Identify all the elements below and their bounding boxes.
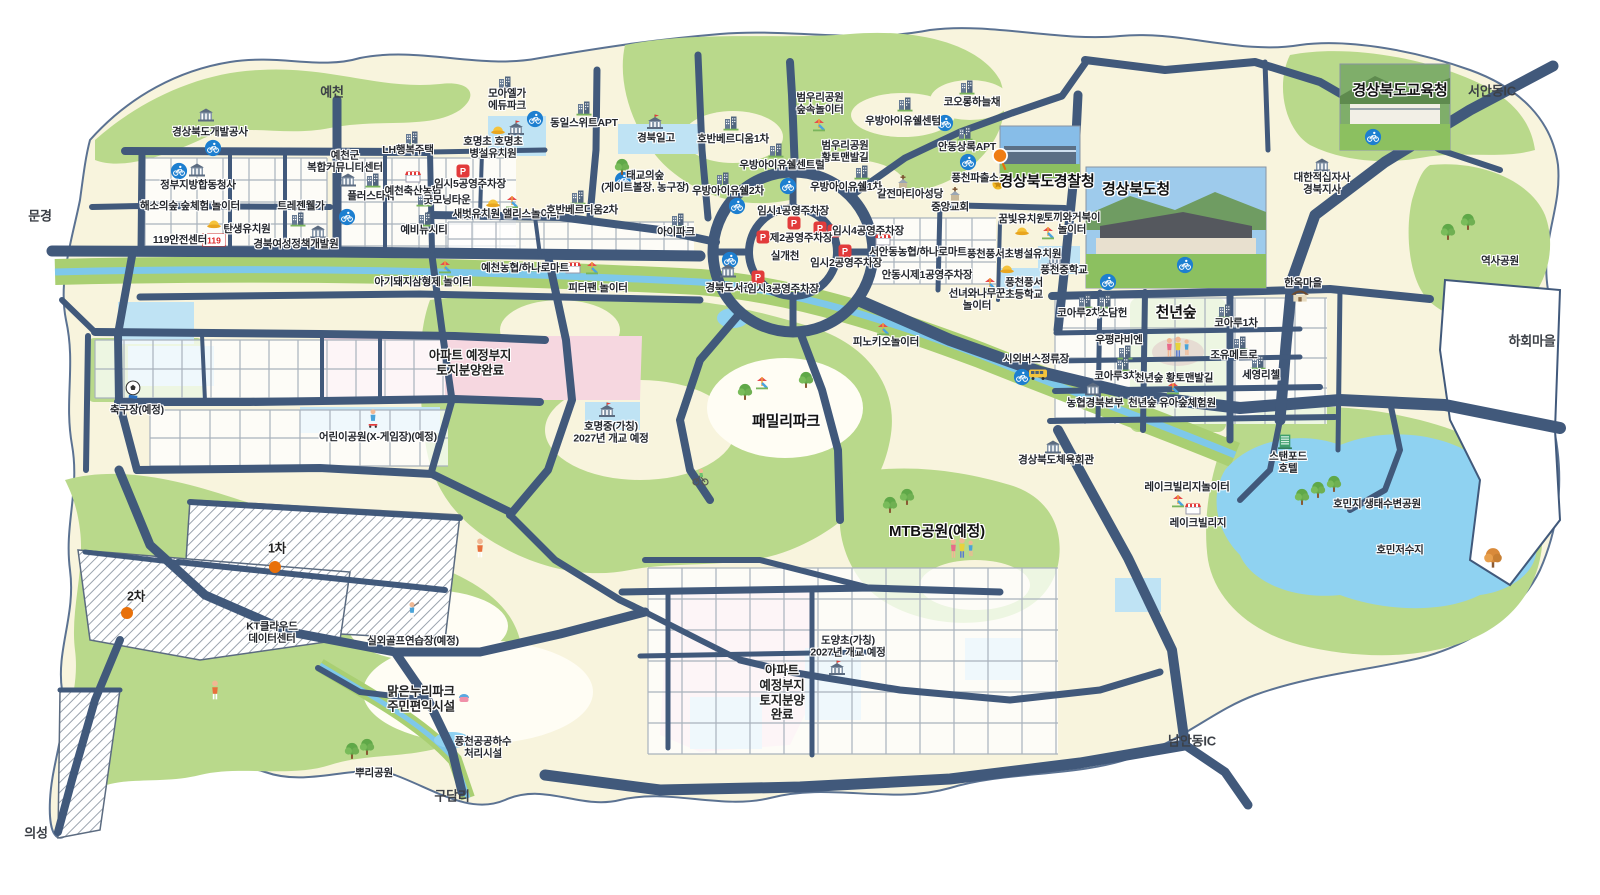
map-label: 피노키오놀이터 [853, 336, 919, 348]
bike-icon [171, 163, 188, 180]
map-label: 아이파크 [657, 226, 695, 238]
map-label: 우평라비엔 [1095, 334, 1142, 346]
bldg-icon [497, 76, 513, 91]
map-label: 119안전센터 [153, 234, 207, 246]
p119-icon: 119 [202, 234, 226, 247]
bldg-icon [576, 101, 592, 116]
map-label: 농협경북본부 [1067, 397, 1124, 409]
tree-icon [1326, 475, 1342, 493]
map-label: 역사공원 [1481, 255, 1519, 267]
map-label: 임시3공영주차장 [747, 283, 819, 295]
tree-icon [737, 383, 753, 401]
map-label: 플러스타워 [347, 190, 394, 202]
map-label: 실개천 [771, 250, 799, 262]
map-label: 남안동IC [1168, 733, 1216, 748]
tree-icon [614, 158, 630, 176]
map-label: 실외골프연습장(예정) [367, 635, 459, 647]
play-icon [1171, 494, 1185, 508]
bldg-icon [1250, 355, 1266, 370]
govt-icon [310, 226, 326, 239]
play-icon [1166, 381, 1180, 395]
map-label: 1차 [268, 542, 286, 557]
bike-icon [1014, 369, 1031, 386]
family-icon [1164, 336, 1192, 358]
kinder-icon [207, 219, 221, 230]
play-icon [983, 277, 997, 291]
tree-icon [344, 742, 360, 760]
tree-icon [359, 738, 375, 756]
person-icon [210, 680, 221, 700]
map-label: 정부지방합동청사 [160, 179, 236, 191]
map-label: 풍천중학교 [1040, 264, 1087, 276]
map-label: 우방아이유쉘센텀 [865, 115, 941, 127]
school-icon [599, 402, 615, 418]
map-label: 맑은누리파크 주민편익시설 [387, 684, 455, 714]
govt-icon [1314, 159, 1330, 172]
map-label: 경상북도교육청 [1352, 82, 1447, 100]
map-label: 안동상록APT [938, 141, 996, 153]
bldg-icon [854, 165, 870, 180]
bldg-icon [897, 97, 913, 112]
play-icon [1041, 226, 1055, 240]
map-label: 아기돼지삼형제 놀이터 [374, 276, 471, 288]
parking-icon: P [788, 217, 801, 230]
parking-icon: P [828, 225, 841, 238]
map-label: 2차 [127, 590, 145, 605]
map-label: 중앙교회 [931, 201, 969, 213]
map-label: 새벗유치원 앨리스놀이터 [453, 208, 560, 220]
map-label: 굿모닝타운 [423, 194, 470, 206]
map-label: 태교의숲 (게이트볼장, 농구장) [601, 170, 689, 195]
map-label: 호반베르디움1차 [697, 133, 769, 145]
svg-text:P: P [842, 247, 848, 257]
bldg-icon [1097, 294, 1113, 309]
map-label: 임시2공영주차장 [810, 257, 882, 269]
map-label: 천년숲 [1156, 304, 1197, 322]
bldg-icon [1232, 336, 1248, 351]
parking-icon: P [757, 231, 770, 244]
bldg-icon [1217, 304, 1233, 319]
store-icon [405, 171, 421, 183]
map-label: 임시1공영주차장 [757, 205, 829, 217]
store-icon [1185, 503, 1201, 515]
map-label: 시외버스정류장 [1003, 353, 1069, 365]
bike-icon [780, 178, 797, 195]
kinder-icon [486, 198, 500, 209]
map-label: 갈전마티아성당 [877, 188, 943, 200]
map-label: LH행복주택 [382, 144, 433, 156]
bike-icon [960, 154, 977, 171]
map-label: 모아엘가 에듀파크 [488, 88, 526, 113]
map-label: KT클라우드 데이터센터 [246, 621, 297, 646]
map-label: 범우리공원 황토맨발길 [821, 140, 868, 165]
school-icon [829, 660, 845, 676]
person-icon [475, 538, 486, 558]
church-icon [949, 187, 961, 201]
map-label: 탄생유치원 [223, 223, 270, 235]
map-label: 대한적십자사 경북지사 [1294, 172, 1351, 197]
map-label: 토끼와거북이 놀이터 [1044, 212, 1101, 237]
govt-icon [720, 265, 736, 278]
map-label: 경북도서관 [705, 282, 752, 294]
play-icon [585, 261, 599, 275]
map-label: 경상북도체육회관 [1018, 454, 1094, 466]
treeA-icon [1483, 547, 1503, 569]
map-label: 축구장(예정) [110, 404, 164, 416]
map-label: 한옥마을 [1284, 277, 1322, 289]
bike-icon [615, 172, 632, 189]
kinder-icon [491, 125, 505, 136]
bike-icon [722, 252, 739, 269]
map-label: 서안동농협/하나로마트 [869, 246, 966, 258]
map-label: 아파트 예정부지 토지분양 완료 [759, 664, 804, 723]
map-label: 천년숲 황토맨발길 [1135, 372, 1213, 384]
bike-icon [339, 209, 356, 226]
map-label: 범우리공원 숲속놀이터 [796, 92, 843, 117]
bldg-icon [290, 212, 306, 227]
tree-icon [1294, 488, 1310, 506]
bldg-icon [715, 172, 731, 187]
map-label: 레이크빌리지놀이터 [1144, 481, 1229, 493]
dot-icon [120, 606, 134, 620]
map-label: 호명중(가칭) 2027년 개교 예정 [573, 421, 648, 446]
tree-icon [882, 496, 898, 514]
map-label: 아파트 예정부지 토지분양완료 [429, 348, 511, 378]
map-label: 호민저수지 [1376, 544, 1423, 556]
svg-text:P: P [831, 227, 837, 237]
picnic-icon [457, 692, 471, 704]
svg-text:P: P [817, 224, 823, 234]
map-label: 경북일고 [637, 132, 675, 144]
tree-icon [1460, 213, 1476, 231]
bldg-icon [768, 143, 784, 158]
map-label: 경상북도경찰청 [999, 173, 1094, 191]
map-label: 구담리 [434, 788, 469, 803]
play-icon [876, 322, 890, 336]
map-label: 뿌리공원 [355, 767, 393, 779]
map-label: 패밀리파크 [752, 413, 820, 431]
map-label: 서안동IC [1468, 83, 1516, 98]
illustrated-city-map: PPPPPPP119예천문경의성구담리남안동IC서안동IC하회마을역사공원경상북… [0, 0, 1600, 895]
map-label: 예천군 복합커뮤니티센터 [307, 150, 383, 175]
govt-icon [1085, 383, 1101, 396]
map-label: 경상북도청 [1102, 181, 1170, 199]
dot-icon [268, 560, 282, 574]
map-label: 경상북도개발공사 [172, 126, 248, 138]
map-label: 천년숲 유아숲체험원 [1128, 397, 1216, 409]
map-label: 선녀와나무꾼 놀이터 [949, 288, 1006, 313]
parking-icon: P [814, 222, 827, 235]
tree-icon [798, 371, 814, 389]
kinder-icon [1015, 226, 1029, 237]
bldg-icon [723, 116, 739, 131]
tree-icon [899, 488, 915, 506]
bldg-icon [959, 80, 975, 95]
map-label: 우방아이유쉘2차 [692, 185, 764, 197]
map-label: 안동시제1공영주차장 [882, 269, 973, 281]
hanok-icon [1290, 289, 1310, 303]
svg-text:119: 119 [207, 236, 221, 246]
kinder-icon [1000, 264, 1014, 275]
store-icon [565, 262, 581, 274]
bldg-icon [417, 212, 433, 227]
govt-icon [340, 174, 356, 187]
map-label: 제2공영주차장 [770, 232, 832, 244]
map-label: 예비뉴시티 [400, 224, 447, 236]
map-label: 코아루3차 [1094, 370, 1137, 382]
map-label: 문경 [28, 208, 52, 223]
map-label: 동일스위트APT [550, 117, 618, 129]
play-icon [438, 260, 452, 274]
map-label: 풍천풍서초병설유치원 [967, 248, 1062, 260]
govt-icon [189, 164, 205, 177]
map-label-layer: PPPPPPP119예천문경의성구담리남안동IC서안동IC하회마을역사공원경상북… [0, 0, 1600, 895]
school-icon [647, 114, 663, 130]
map-label: 임시5공영주차장 [434, 178, 506, 190]
cyclist-icon [690, 468, 710, 486]
map-label: 하회마을 [1508, 333, 1555, 348]
play-icon [755, 376, 769, 390]
tree-icon [1440, 223, 1456, 241]
play-icon [812, 118, 826, 132]
map-label: 우방아이유쉘센트럴 [739, 159, 824, 171]
bldg-icon [365, 173, 381, 188]
pin-icon [991, 148, 1009, 172]
police-icon [992, 178, 1004, 190]
bldg-icon [416, 192, 432, 207]
map-label: 조유메트로 [1210, 349, 1257, 361]
map-label: 예천축산농협 [385, 185, 442, 197]
parking-icon: P [752, 271, 765, 284]
play-icon [505, 195, 519, 209]
bldg-icon [404, 131, 420, 146]
map-label: 호명초 호명초 병설유치원 [463, 136, 522, 161]
map-label: 소담헌 [1099, 307, 1127, 319]
parking-icon: P [457, 165, 470, 178]
map-label: 임시4공영주차장 [832, 225, 904, 237]
svg-text:P: P [760, 233, 766, 243]
svg-text:P: P [755, 273, 761, 283]
bldg-icon [670, 213, 686, 228]
map-label: 코아루2차 [1057, 307, 1100, 319]
map-label: 우방아이유쉘1차 [810, 181, 882, 193]
bike-icon [205, 140, 222, 157]
bldg-icon [1115, 357, 1131, 372]
map-label: MTB공원(예정) [889, 523, 985, 541]
skater-icon [366, 409, 380, 429]
map-label: 예천농협/하나로마트 [481, 262, 569, 274]
church-icon [897, 175, 909, 189]
svg-text:P: P [791, 219, 797, 229]
school-icon [1047, 250, 1063, 266]
map-label: 풍천파출소 [951, 172, 998, 184]
map-label: 경북여성정책개발원 [253, 238, 338, 250]
map-label: 세영리첼 [1242, 369, 1280, 381]
svg-text:P: P [460, 167, 466, 177]
map-label: 호민지 생태수변공원 [1333, 498, 1421, 510]
bike-icon [1100, 274, 1117, 291]
hotel-icon [1278, 433, 1293, 450]
map-label: 레이크빌리지 [1170, 517, 1227, 529]
govt-icon [198, 109, 214, 122]
soccer-icon [125, 381, 142, 400]
bike-icon [1177, 257, 1194, 274]
map-label: 코오롱하늘채 [944, 96, 1001, 108]
bldg-icon [1077, 294, 1093, 309]
map-label: 풍천풍서 초등학교 [1005, 277, 1043, 302]
map-label: 풍천공공하수 처리시설 [455, 736, 512, 761]
map-label: 해소의숲 숲체험 놀이터 [140, 200, 240, 212]
map-label: 피터팬 놀이터 [568, 282, 627, 294]
tree-icon [1310, 481, 1326, 499]
map-label: 코아루1차 [1214, 317, 1257, 329]
bike-icon [937, 115, 954, 132]
map-label: 스탠포드 호텔 [1269, 451, 1307, 476]
bldg-icon [570, 190, 586, 205]
map-label: 트레젠웰가 [277, 200, 324, 212]
map-label: 호반베르디움2차 [546, 204, 618, 216]
map-label: 예천 [320, 84, 344, 99]
bldg-icon [957, 126, 973, 141]
map-label: 어린이공원(X-게임장)(예정) [319, 431, 437, 443]
bus-icon [1029, 370, 1047, 381]
parking-icon: P [839, 245, 852, 258]
govt-icon [1045, 441, 1061, 454]
school-icon [508, 120, 524, 136]
bike-icon [1365, 129, 1382, 146]
golfer-icon [404, 602, 421, 621]
map-label: 꿈빛유치원 [998, 213, 1045, 225]
store-icon [875, 234, 891, 246]
map-label: 도양초(가칭) 2027년 개교 예정 [810, 635, 885, 660]
family-icon [948, 537, 976, 559]
bike-icon [527, 111, 544, 128]
map-label: 의성 [24, 825, 48, 840]
bike-icon [729, 198, 746, 215]
bldg-icon [1117, 345, 1133, 360]
